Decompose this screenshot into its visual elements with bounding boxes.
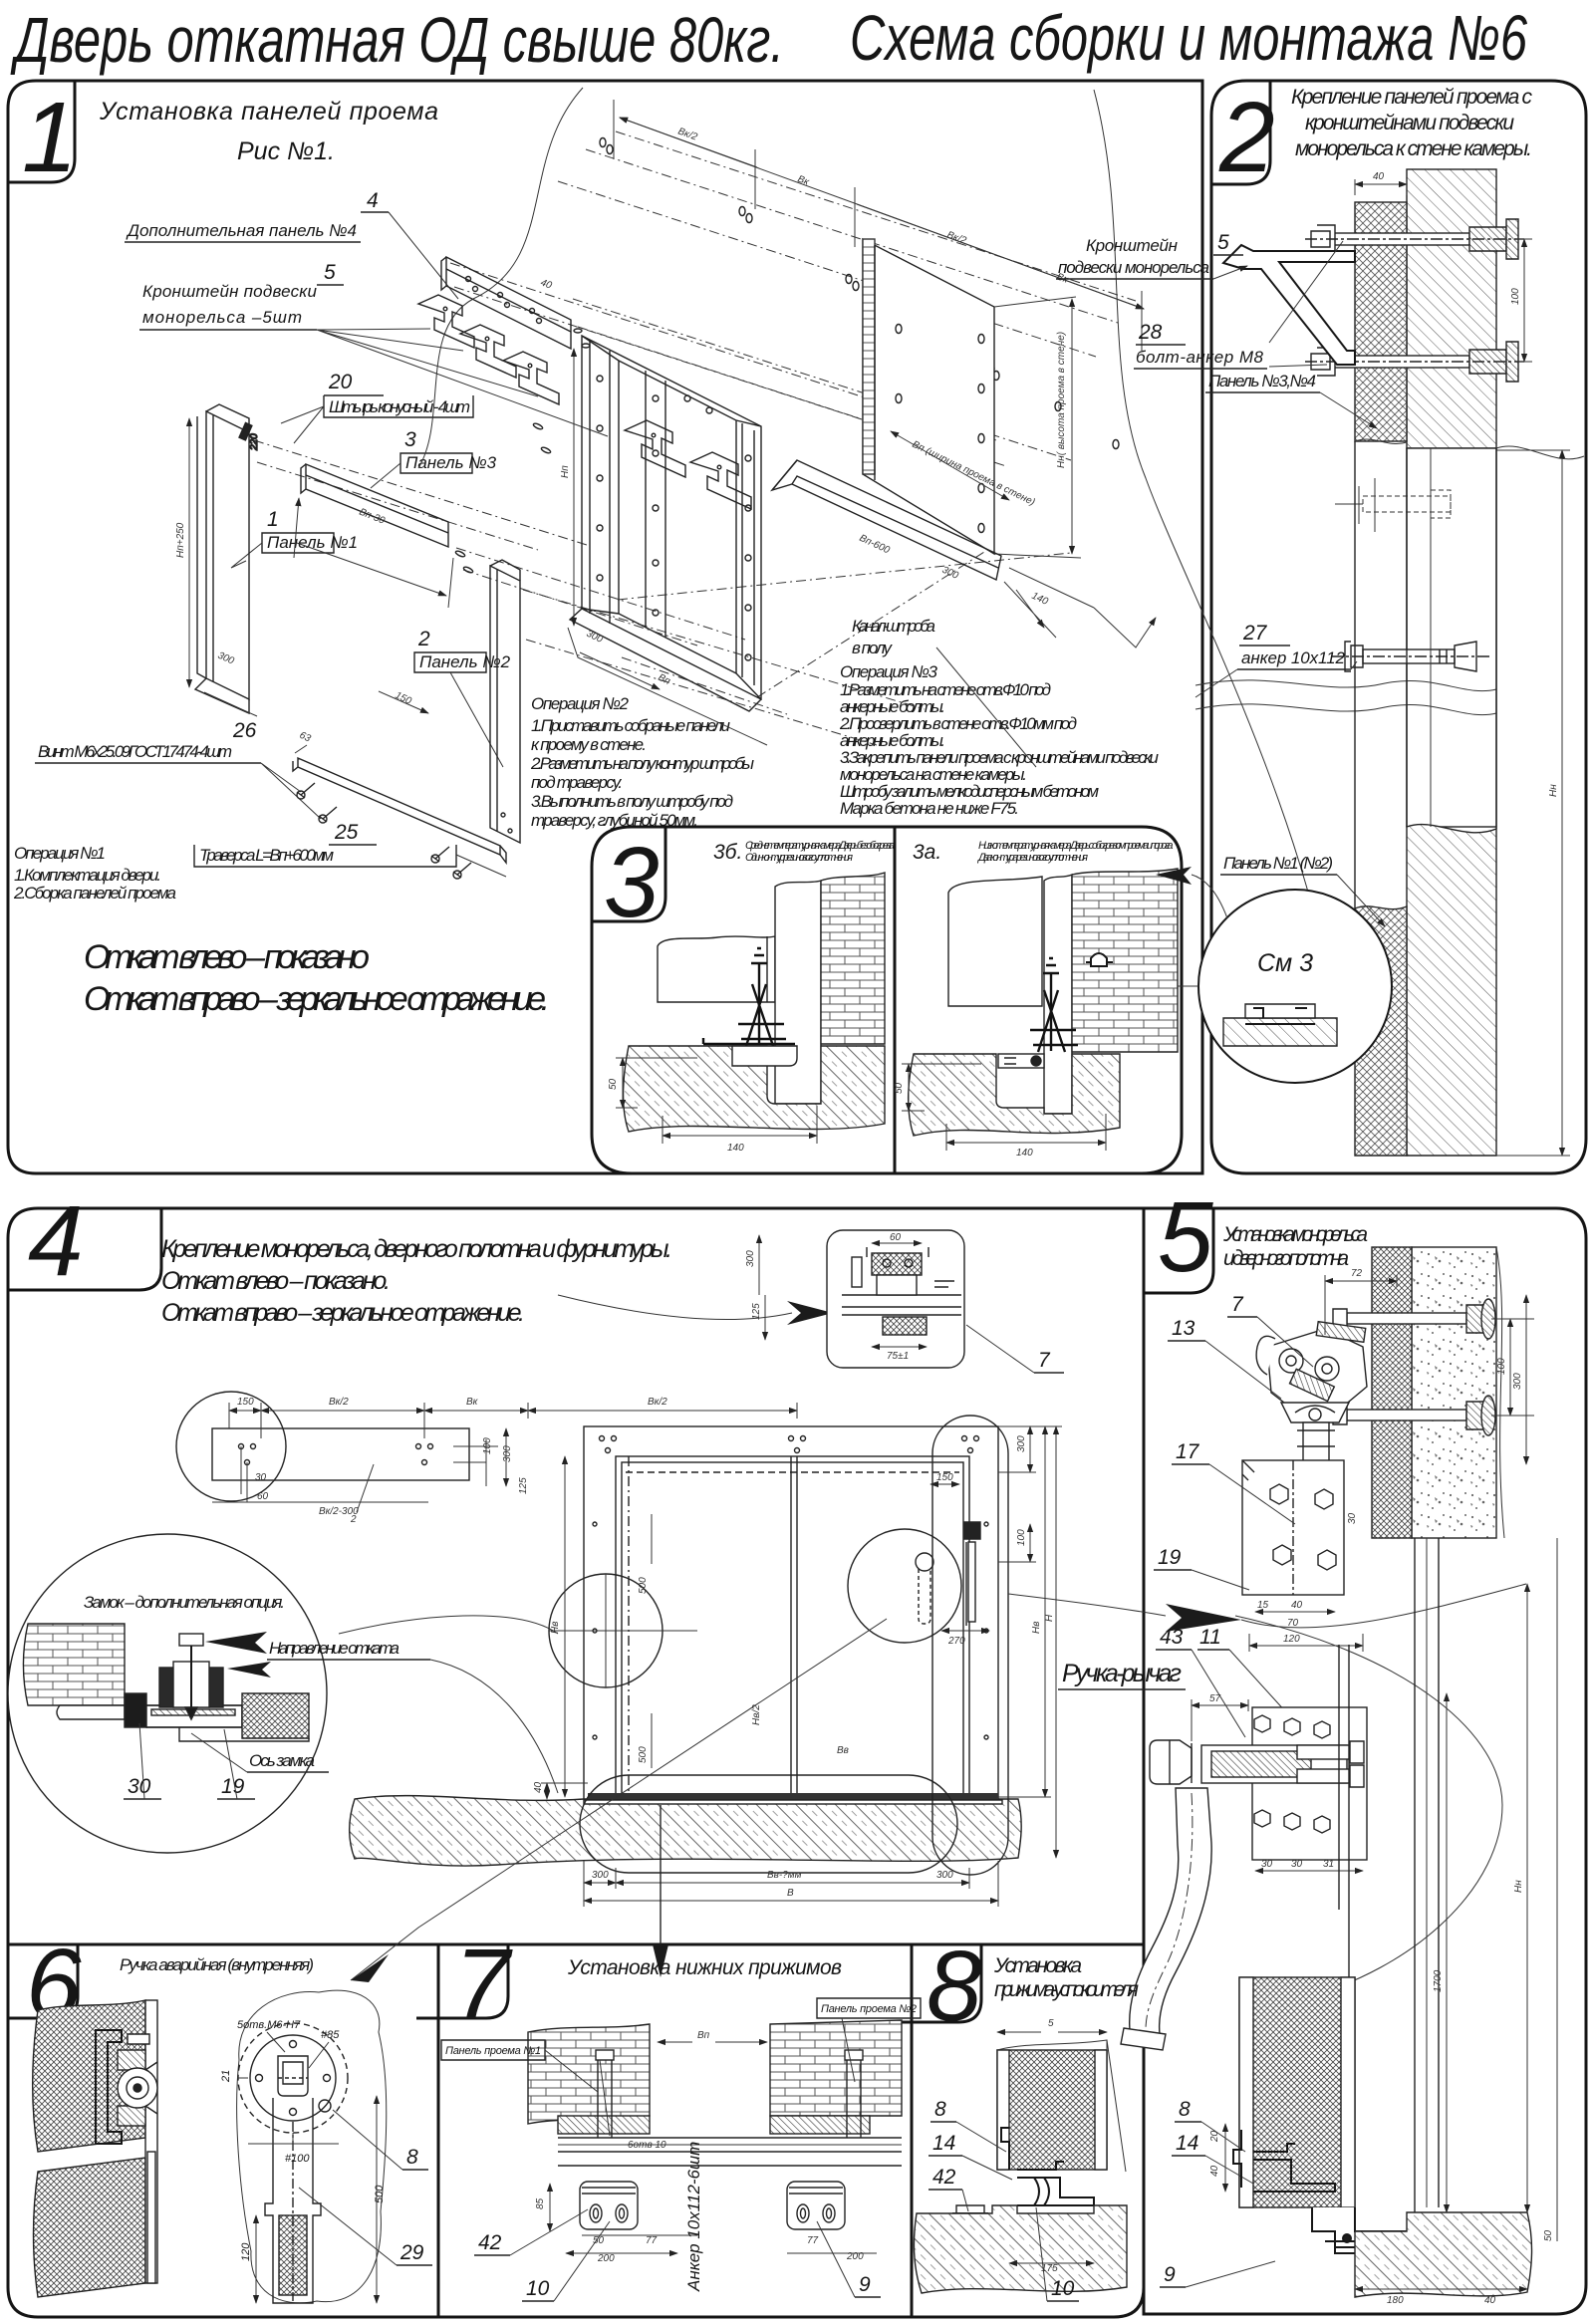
svg-text:42: 42 — [478, 2231, 502, 2254]
svg-text:1700: 1700 — [1433, 1969, 1444, 1992]
svg-text:кронштейнами подвески: кронштейнами подвески — [1305, 112, 1514, 134]
svg-text:30: 30 — [255, 1472, 267, 1483]
svg-text:монорельса –5шт: монорельса –5шт — [142, 308, 302, 327]
svg-text:60: 60 — [257, 1491, 269, 1502]
svg-text:7: 7 — [454, 1929, 513, 2040]
svg-text:40: 40 — [1373, 171, 1385, 182]
svg-text:300: 300 — [502, 1445, 513, 1462]
svg-text:монорельса к стене камеры.: монорельса к стене камеры. — [1295, 137, 1532, 160]
svg-text:100: 100 — [1496, 1358, 1507, 1375]
svg-text:42: 42 — [932, 2166, 956, 2189]
svg-text:5: 5 — [1158, 1181, 1213, 1293]
svg-text:Панель проема №2: Панель проема №2 — [821, 2003, 917, 2015]
svg-text:40: 40 — [1209, 2165, 1220, 2177]
svg-text:Нн: Нн — [1513, 1880, 1524, 1893]
svg-text:57: 57 — [1209, 1693, 1221, 1704]
svg-text:120: 120 — [1283, 1634, 1300, 1645]
svg-text:Кронштейн подвески: Кронштейн подвески — [142, 282, 318, 301]
svg-text:100: 100 — [1510, 288, 1521, 305]
svg-text:1: 1 — [267, 508, 279, 531]
svg-text:10: 10 — [526, 2277, 550, 2300]
svg-text:19: 19 — [1158, 1546, 1182, 1569]
svg-text:под траверсу.: под траверсу. — [531, 773, 623, 792]
svg-text:27: 27 — [1242, 622, 1268, 645]
svg-text:Схема сборки и монтажа №6: Схема сборки и монтажа №6 — [850, 2, 1527, 74]
svg-text:3: 3 — [404, 428, 416, 451]
svg-text:Среднетемпературная камера.Две: Среднетемпературная камера.Дверь без обо… — [745, 840, 895, 852]
svg-text:11: 11 — [1199, 1626, 1221, 1649]
svg-text:Установка монорельса: Установка монорельса — [1222, 1223, 1368, 1246]
svg-text:Операция №2: Операция №2 — [531, 694, 630, 713]
svg-text:180: 180 — [1387, 2295, 1404, 2306]
svg-text:2: 2 — [350, 1514, 357, 1525]
svg-text:220: 220 — [249, 433, 260, 451]
svg-text:77: 77 — [646, 2235, 658, 2246]
svg-text:Ось замка: Ось замка — [249, 1751, 315, 1770]
svg-text:14: 14 — [1176, 2132, 1198, 2155]
svg-text:Винт М6х25.09ГОСТ17474-4шт: Винт М6х25.09ГОСТ17474-4шт — [38, 742, 232, 761]
svg-text:подвески монорельса: подвески монорельса — [1058, 258, 1209, 277]
svg-text:100: 100 — [482, 1437, 493, 1454]
svg-text:26: 26 — [232, 719, 257, 742]
svg-text:#85: #85 — [321, 2029, 340, 2041]
svg-text:траверсу, глубиной 50мм.: траверсу, глубиной 50мм. — [531, 811, 698, 830]
svg-text:Панель проема №1: Панель проема №1 — [445, 2045, 541, 2057]
svg-text:300: 300 — [592, 1870, 609, 1881]
svg-text:17: 17 — [1176, 1440, 1200, 1463]
svg-text:Ручка-рычаг: Ручка-рычаг — [1062, 1660, 1182, 1687]
svg-text:3.Выполнить в полу штробу под: 3.Выполнить в полу штробу под — [531, 792, 733, 811]
svg-text:Панель №3: Панель №3 — [405, 453, 497, 472]
svg-text:5: 5 — [1048, 2018, 1054, 2029]
svg-text:40: 40 — [1484, 2295, 1496, 2306]
svg-text:270: 270 — [947, 1636, 965, 1647]
svg-text:и дверного полотна: и дверного полотна — [1223, 1247, 1349, 1270]
svg-text:Вв-?мм: Вв-?мм — [767, 1870, 802, 1881]
svg-text:300: 300 — [1016, 1435, 1027, 1452]
svg-text:Н: Н — [1044, 1614, 1055, 1622]
svg-text:Откат влево – показано.: Откат влево – показано. — [161, 1267, 391, 1295]
svg-text:3б.: 3б. — [713, 841, 742, 864]
svg-text:13: 13 — [1172, 1317, 1195, 1340]
svg-text:1: 1 — [22, 82, 78, 193]
svg-text:20: 20 — [1209, 2130, 1220, 2143]
svg-text:500: 500 — [638, 1577, 649, 1594]
svg-text:Операция №1: Операция №1 — [14, 844, 106, 863]
svg-text:Дверь откатная ОД свыше 80кг.: Дверь откатная ОД свыше 80кг. — [10, 4, 784, 76]
svg-text:9: 9 — [1164, 2263, 1176, 2286]
svg-text:Нв: Нв — [550, 1622, 561, 1634]
svg-text:Направление отката: Направление отката — [269, 1639, 399, 1658]
svg-text:200: 200 — [597, 2253, 615, 2264]
svg-text:3: 3 — [604, 827, 660, 938]
svg-text:Вв: Вв — [837, 1745, 849, 1756]
svg-text:8: 8 — [934, 2098, 946, 2121]
svg-text:Ручка аварийная (внутренняя): Ручка аварийная (внутренняя) — [120, 1955, 314, 1974]
svg-text:10: 10 — [1051, 2277, 1075, 2300]
svg-text:20: 20 — [328, 371, 353, 393]
svg-text:40: 40 — [1291, 1600, 1303, 1611]
svg-text:300: 300 — [745, 1250, 756, 1267]
svg-text:2.Разметить на полу контур штр: 2.Разметить на полу контур штробы — [530, 754, 754, 773]
svg-text:5: 5 — [324, 261, 336, 284]
svg-text:Крепление панелей проема с: Крепление панелей проема с — [1291, 86, 1533, 109]
svg-text:Вк/2: Вк/2 — [329, 1397, 349, 1408]
svg-text:60: 60 — [890, 1232, 902, 1243]
svg-text:Вп: Вп — [697, 2030, 710, 2041]
svg-text:9: 9 — [859, 2273, 871, 2296]
svg-text:500: 500 — [638, 1746, 649, 1763]
svg-text:77: 77 — [807, 2235, 819, 2246]
svg-text:30: 30 — [128, 1775, 151, 1798]
svg-text:140: 140 — [727, 1143, 744, 1154]
svg-text:Замок – дополнительная опция.: Замок – дополнительная опция. — [84, 1593, 285, 1612]
svg-text:300: 300 — [1512, 1373, 1523, 1390]
svg-text:2.Сборка панелей проема: 2.Сборка панелей проема — [13, 884, 176, 903]
svg-text:2: 2 — [1218, 82, 1275, 193]
svg-text:В: В — [787, 1888, 794, 1899]
svg-text:Вк/2: Вк/2 — [648, 1397, 667, 1408]
svg-text:Панель №1: Панель №1 — [267, 533, 358, 552]
svg-text:125: 125 — [751, 1303, 762, 1320]
svg-text:14: 14 — [932, 2132, 955, 2155]
svg-text:1.Комплектация двери.: 1.Комплектация двери. — [14, 866, 161, 885]
svg-text:150: 150 — [936, 1472, 953, 1483]
svg-text:Нн( высота проема в стене): Нн( высота проема в стене) — [1056, 332, 1067, 468]
svg-text:31: 31 — [1323, 1859, 1334, 1870]
svg-text:Низкотемпературная камера. Две: Низкотемпературная камера. Дверь с обогр… — [978, 840, 1174, 852]
svg-text:Крепление монорельса, дверного: Крепление монорельса, дверного полотна и… — [161, 1235, 672, 1263]
svg-text:125: 125 — [518, 1477, 529, 1494]
svg-text:72: 72 — [1351, 1268, 1363, 1279]
svg-text:300: 300 — [936, 1870, 953, 1881]
svg-text:140: 140 — [1016, 1148, 1033, 1159]
svg-text:Панель №3,№4: Панель №3,№4 — [1208, 372, 1316, 390]
svg-text:Марка бетона не ниже F75.: Марка бетона не ниже F75. — [840, 799, 1019, 818]
svg-text:Нв: Нв — [1031, 1622, 1042, 1634]
svg-text:анкер 10х112: анкер 10х112 — [1241, 648, 1346, 667]
svg-text:Рис №1.: Рис №1. — [237, 137, 335, 165]
svg-text:100: 100 — [1016, 1529, 1027, 1546]
svg-text:15: 15 — [1257, 1600, 1269, 1611]
svg-text:прижима-успокоителя: прижима-успокоителя — [994, 1978, 1139, 2001]
svg-text:Два контура резинового уплотне: Два контура резинового уплотнения — [976, 852, 1088, 864]
svg-text:50: 50 — [894, 1082, 905, 1094]
svg-text:См 3: См 3 — [1257, 949, 1313, 977]
svg-text:5отв.М6-Н7: 5отв.М6-Н7 — [237, 2019, 301, 2031]
svg-text:30: 30 — [1261, 1859, 1273, 1870]
svg-text:4: 4 — [367, 189, 379, 212]
svg-text:50: 50 — [608, 1078, 619, 1090]
svg-text:#100: #100 — [285, 2153, 310, 2165]
svg-text:Откат вправо – зеркальное отра: Откат вправо – зеркальное отражение. — [161, 1299, 525, 1327]
svg-text:Кронштейн: Кронштейн — [1086, 236, 1179, 255]
svg-text:болт-анкер М8: болт-анкер М8 — [1136, 348, 1264, 367]
svg-text:6отв 10: 6отв 10 — [628, 2140, 666, 2151]
svg-text:Операция №3: Операция №3 — [840, 662, 938, 681]
svg-text:Дополнительная панель №4: Дополнительная панель №4 — [126, 221, 357, 240]
svg-text:150: 150 — [237, 1397, 254, 1408]
svg-text:7: 7 — [1231, 1293, 1244, 1316]
svg-text:Установка нижних прижимов: Установка нижних прижимов — [567, 1956, 842, 1979]
svg-text:4: 4 — [28, 1185, 84, 1297]
svg-text:8: 8 — [406, 2146, 418, 2169]
svg-text:28: 28 — [1138, 321, 1163, 344]
svg-text:8: 8 — [1179, 2098, 1191, 2121]
svg-text:25: 25 — [334, 821, 359, 844]
svg-text:Траверса L=Вп+600мм: Траверса L=Вп+600мм — [199, 846, 334, 865]
svg-text:Установка: Установка — [993, 1954, 1082, 1977]
svg-text:21: 21 — [220, 2070, 232, 2083]
svg-text:30: 30 — [1291, 1859, 1303, 1870]
svg-text:к проему в стене.: к проему в стене. — [531, 735, 647, 754]
svg-text:3а.: 3а. — [913, 841, 941, 864]
svg-text:85: 85 — [535, 2197, 546, 2209]
svg-text:7: 7 — [1038, 1349, 1051, 1372]
svg-text:Штырь конусный - 4шт: Штырь конусный - 4шт — [329, 397, 470, 416]
svg-text:Нн: Нн — [1548, 784, 1559, 797]
svg-text:Откат влево – показано: Откат влево – показано — [84, 938, 370, 976]
svg-text:Установка панелей проема: Установка панелей проема — [99, 98, 438, 126]
svg-text:8: 8 — [927, 1931, 982, 2042]
svg-text:50: 50 — [1543, 2229, 1554, 2241]
svg-text:Анкер 10х112-6шт: Анкер 10х112-6шт — [684, 2142, 703, 2292]
svg-text:1.Приставить собраные панели: 1.Приставить собраные панели — [531, 716, 731, 735]
svg-text:Нп+250: Нп+250 — [175, 522, 186, 558]
svg-text:Канал-штроба: Канал-штроба — [852, 617, 935, 636]
svg-text:Один контур резинового уплотне: Один контур резинового уплотнения — [745, 852, 853, 864]
svg-text:75±1: 75±1 — [887, 1351, 909, 1362]
svg-text:в полу: в полу — [852, 639, 894, 657]
svg-text:Откат вправо – зеркальное отра: Откат вправо – зеркальное отражение. — [84, 980, 550, 1018]
svg-text:30: 30 — [1347, 1512, 1358, 1524]
svg-text:Нп: Нп — [560, 465, 571, 478]
svg-text:29: 29 — [399, 2241, 424, 2264]
svg-text:Панель №1 (№2): Панель №1 (№2) — [1223, 854, 1333, 873]
svg-text:500: 500 — [374, 2185, 386, 2203]
svg-text:Вк: Вк — [466, 1397, 479, 1408]
svg-text:70: 70 — [1287, 1618, 1299, 1629]
svg-text:120: 120 — [240, 2242, 252, 2261]
svg-text:2: 2 — [417, 628, 430, 650]
svg-text:43: 43 — [1160, 1626, 1184, 1649]
svg-text:5: 5 — [1217, 231, 1229, 254]
